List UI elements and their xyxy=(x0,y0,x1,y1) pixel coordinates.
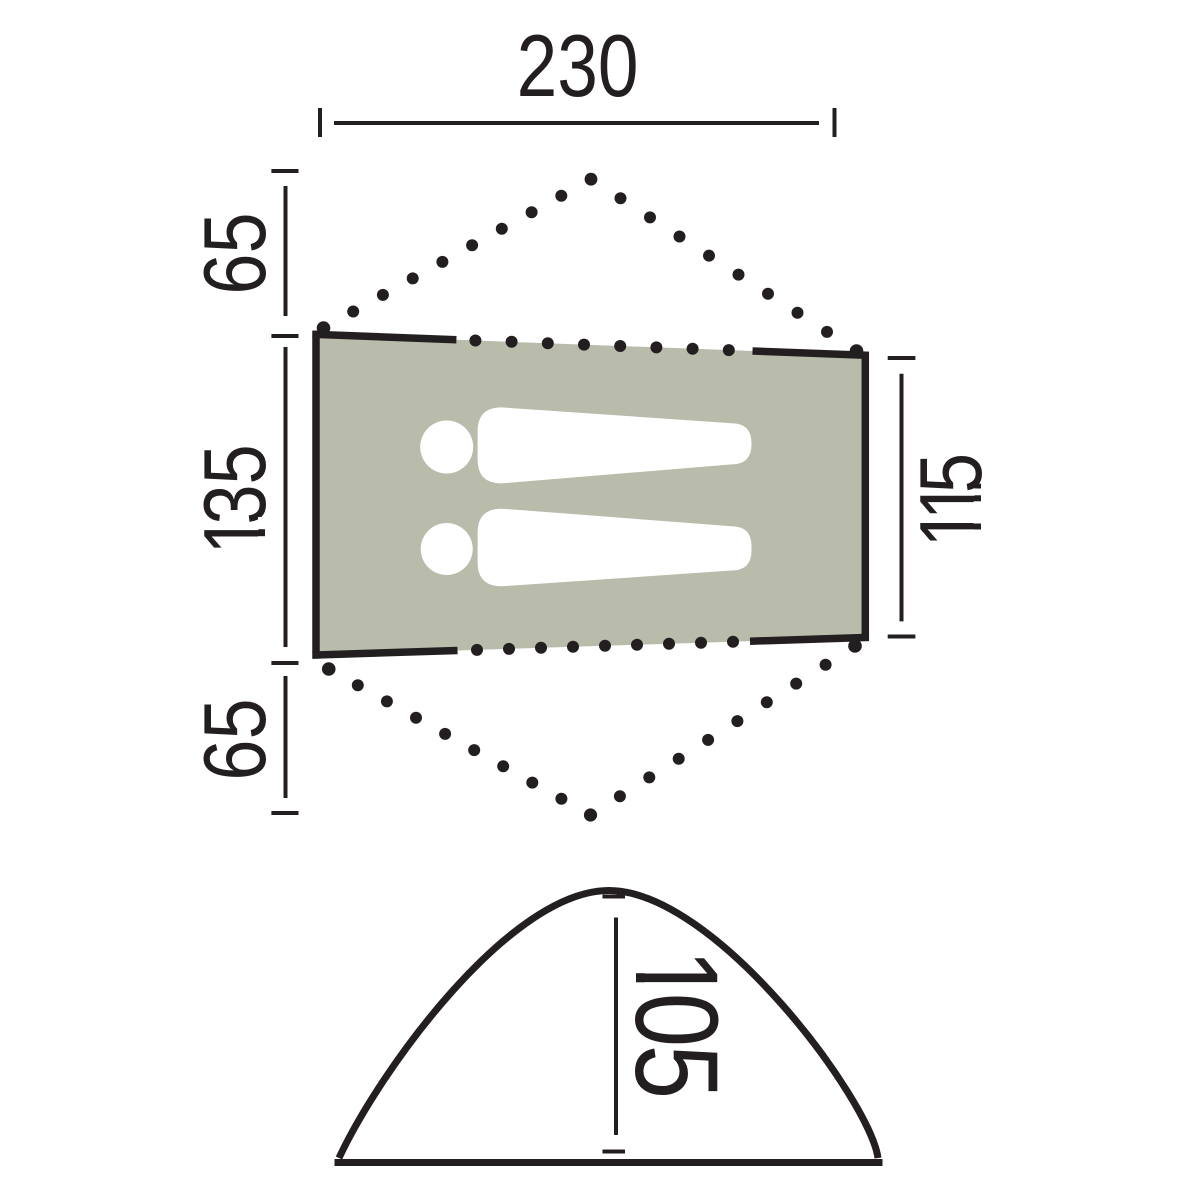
svg-text:135: 135 xyxy=(186,444,284,554)
svg-text:65: 65 xyxy=(186,212,285,294)
svg-text:65: 65 xyxy=(186,698,285,780)
svg-text:115: 115 xyxy=(902,453,1000,548)
svg-text:105: 105 xyxy=(611,949,743,1099)
svg-text:230: 230 xyxy=(517,17,639,115)
